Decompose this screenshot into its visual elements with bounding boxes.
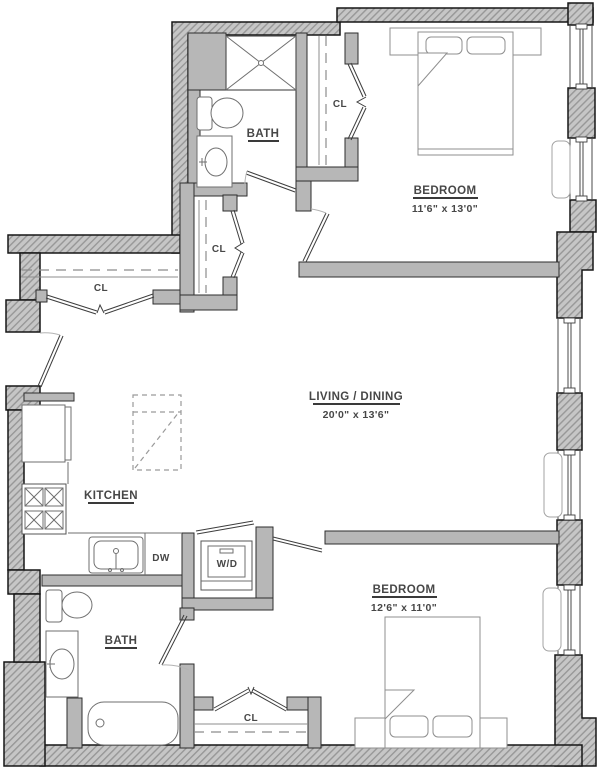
bedroom-bottom-door	[273, 537, 322, 552]
window	[558, 318, 580, 393]
kitchen-sink	[89, 537, 143, 573]
window	[544, 450, 580, 520]
nightstand	[355, 718, 385, 748]
entry-door	[38, 333, 63, 387]
bath-top-label: BATH	[247, 128, 280, 140]
bath-top-door	[245, 171, 296, 192]
pillow	[426, 37, 462, 54]
floor-plan-page: BATH CL BEDROOM 11'6" x 13'0" CL CL LIVI…	[0, 0, 603, 775]
nightstand	[480, 718, 507, 748]
bath-bottom-label: BATH	[105, 635, 138, 647]
bedroom-top-furniture	[390, 28, 541, 155]
bedroom-bottom-furniture	[355, 617, 507, 748]
radiator	[543, 588, 561, 651]
living-dining-label: LIVING / DINING	[309, 391, 403, 403]
radiator	[544, 453, 562, 517]
shower	[226, 36, 296, 90]
pillow	[390, 716, 428, 737]
closet-hall-label: CL	[212, 244, 226, 255]
closet-bottom-label: CL	[244, 713, 258, 724]
floor-plan: BATH CL BEDROOM 11'6" x 13'0" CL CL LIVI…	[0, 0, 603, 775]
dishwasher-label: DW	[152, 553, 170, 564]
window	[543, 585, 580, 655]
washer-dryer-label: W/D	[217, 559, 238, 570]
bath-bottom-door	[159, 615, 189, 670]
bath-bottom-fixtures	[46, 590, 178, 745]
washer-dryer-door	[196, 521, 254, 534]
bedroom-bottom-dims: 12'6" x 11'0"	[371, 602, 437, 614]
bedroom-top-label: BEDROOM	[414, 185, 477, 197]
stove	[22, 484, 66, 534]
radiator	[552, 141, 570, 198]
closet-top-label: CL	[333, 99, 347, 110]
toilet	[46, 590, 92, 622]
bedroom-top-dims: 11'6" x 13'0"	[412, 203, 478, 215]
sink-vanity	[197, 136, 232, 187]
window	[570, 24, 592, 89]
bedroom-bottom-label: BEDROOM	[373, 584, 436, 596]
bedroom-top-door	[303, 209, 329, 262]
pillow	[467, 37, 505, 54]
kitchen-label: KITCHEN	[84, 490, 138, 502]
closet-entry-label: CL	[94, 283, 108, 294]
refrigerator	[22, 405, 71, 462]
toilet	[197, 97, 243, 130]
sink-vanity	[46, 631, 78, 697]
kitchen-island	[133, 395, 181, 470]
window	[552, 137, 592, 201]
living-dining-dims: 20'0" x 13'6"	[323, 409, 390, 421]
pillow	[433, 716, 472, 737]
bathtub	[88, 702, 178, 745]
